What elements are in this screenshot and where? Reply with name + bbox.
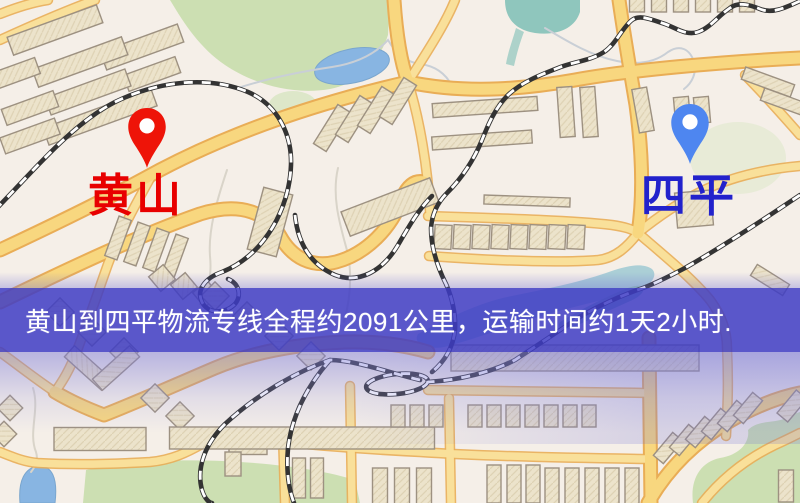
route-info-banner: 黄山到四平物流专线全程约2091公里，运输时间约1天2小时. xyxy=(0,288,800,352)
building xyxy=(545,468,559,503)
building xyxy=(580,87,598,138)
banner-fade-bottom xyxy=(0,352,800,444)
building xyxy=(526,465,540,503)
building xyxy=(529,225,547,250)
building xyxy=(565,468,579,503)
building xyxy=(417,468,432,503)
building xyxy=(434,225,452,250)
building xyxy=(557,87,575,138)
building xyxy=(548,225,566,250)
building xyxy=(472,225,490,250)
building xyxy=(630,0,645,12)
destination-pin-icon xyxy=(665,100,715,167)
building xyxy=(510,225,528,250)
building xyxy=(605,468,619,503)
origin-pin-icon xyxy=(122,104,172,171)
building xyxy=(487,465,501,503)
building xyxy=(311,458,324,498)
building xyxy=(779,470,794,502)
building xyxy=(507,465,521,503)
building xyxy=(453,225,471,250)
banner-fade-top xyxy=(0,272,800,288)
origin-label: 黄山 xyxy=(88,174,184,219)
building xyxy=(625,468,639,503)
destination-label: 四平 xyxy=(641,174,737,219)
building xyxy=(395,468,410,503)
building xyxy=(567,225,585,250)
building xyxy=(674,0,689,12)
building xyxy=(225,452,241,476)
building xyxy=(652,0,667,12)
building xyxy=(373,468,388,503)
route-info-text: 黄山到四平物流专线全程约2091公里，运输时间约1天2小时. xyxy=(0,302,732,339)
building xyxy=(293,458,306,498)
building xyxy=(585,468,599,503)
building xyxy=(696,0,711,12)
map-screenshot: 四平 黄山 黄山到四平物流专线全程约2091公里，运输时间约1天2小时. xyxy=(0,0,800,503)
building xyxy=(491,225,509,250)
